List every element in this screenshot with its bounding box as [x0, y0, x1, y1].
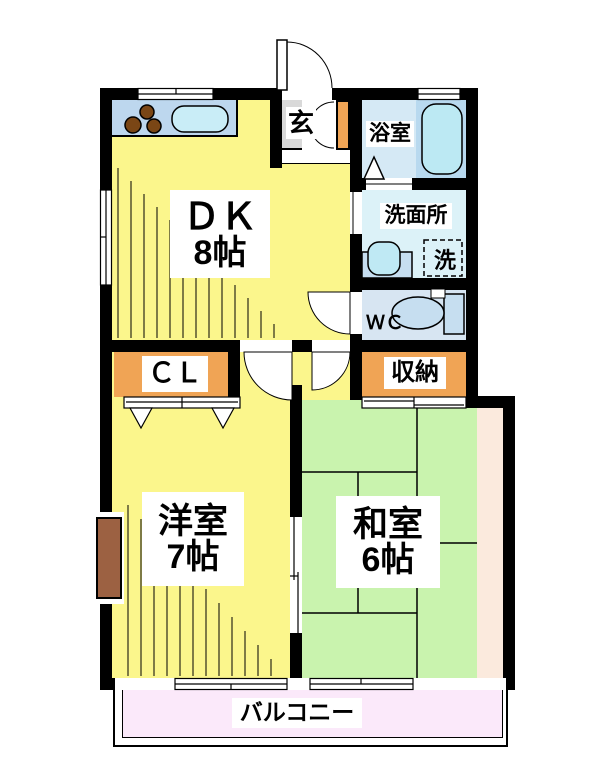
bathtub-zone: [416, 100, 466, 178]
balcony-label: バルコニー: [232, 698, 362, 728]
apartment-floorplan: ＤＫ 8帖 玄 浴室 洗面所 洗 ＷＣ ＣＬ 収納 洋室 7帖 和室 6帖 バル…: [0, 0, 608, 779]
wall: [292, 340, 312, 352]
western-room-label: 洋室 7帖: [142, 492, 244, 586]
wall: [350, 88, 362, 400]
wall: [466, 396, 515, 408]
japanese-room-name: 和室: [353, 507, 423, 543]
shoe-cabinet-side: [336, 100, 350, 150]
wall: [290, 385, 302, 678]
japanese-room-size: 6帖: [362, 543, 415, 578]
wall: [350, 340, 466, 352]
wall: [466, 88, 478, 408]
dk-room-name: ＤＫ: [183, 198, 257, 236]
washroom-label: 洗面所: [380, 203, 452, 229]
wall: [112, 340, 240, 352]
japanese-room-label: 和室 6帖: [336, 496, 440, 588]
wall: [228, 340, 240, 398]
entrance-step: [282, 148, 350, 164]
laundry-label: 洗: [432, 247, 458, 275]
western-room-name: 洋室: [158, 504, 228, 540]
dk-room-size: 8帖: [194, 236, 247, 271]
wall: [350, 178, 466, 190]
wood-box: [96, 517, 122, 599]
entrance-door-leaf: [277, 40, 287, 90]
western-room-size: 7帖: [167, 540, 220, 575]
wall: [503, 396, 515, 690]
entrance-door-arc: [287, 42, 332, 88]
closet-label: ＣＬ: [142, 356, 208, 392]
wall: [270, 88, 282, 168]
kitchen-counter: [112, 100, 238, 137]
storage-label: 収納: [384, 357, 446, 389]
bathroom-label: 浴室: [366, 121, 414, 147]
wall: [100, 88, 478, 100]
dk-room-label: ＤＫ 8帖: [170, 190, 270, 278]
tatami-edge-strip: [477, 400, 503, 678]
entrance-label: 玄: [286, 107, 316, 139]
wall: [350, 278, 466, 290]
wc-label: ＷＣ: [364, 312, 406, 336]
